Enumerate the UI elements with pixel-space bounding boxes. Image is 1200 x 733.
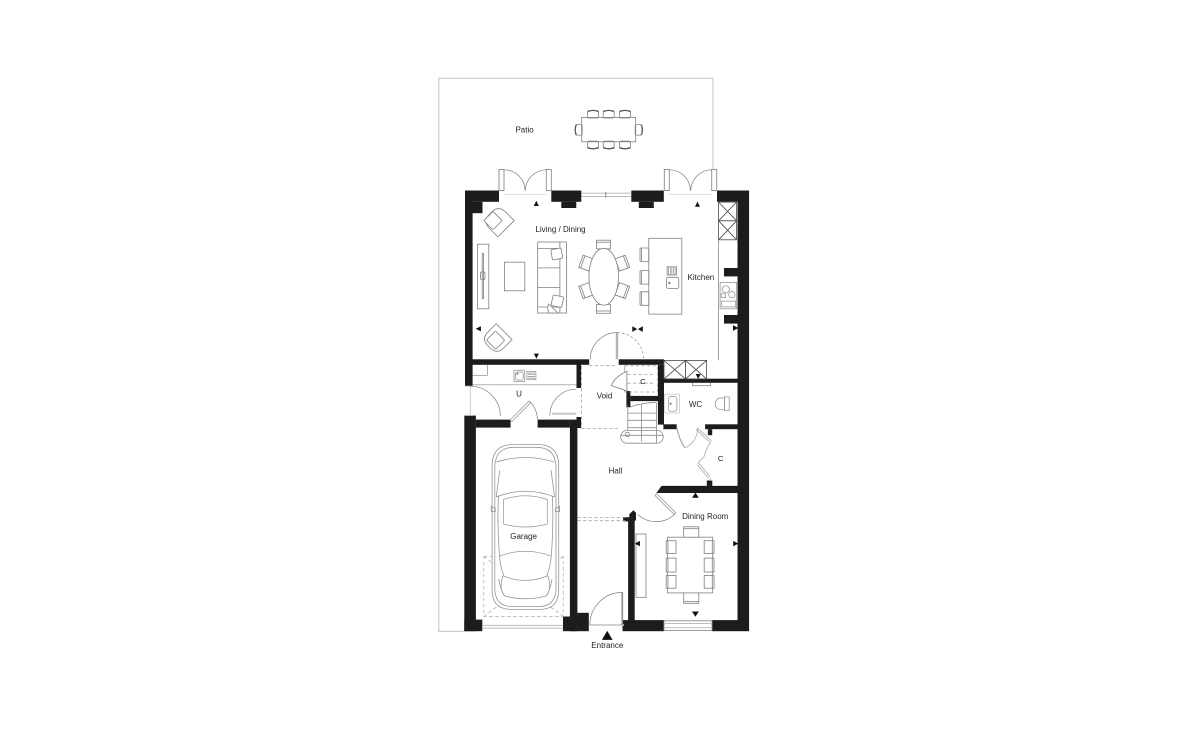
svg-text:C: C <box>640 377 646 386</box>
svg-text:Garage: Garage <box>510 532 537 541</box>
svg-text:Living / Dining: Living / Dining <box>535 225 585 234</box>
svg-text:U: U <box>516 390 522 399</box>
svg-text:WC: WC <box>689 400 703 409</box>
svg-text:C: C <box>718 454 724 463</box>
svg-text:Dining Room: Dining Room <box>682 512 729 521</box>
svg-text:Void: Void <box>597 392 613 401</box>
svg-text:Entrance: Entrance <box>591 641 624 650</box>
svg-text:Patio: Patio <box>515 126 534 135</box>
svg-text:Kitchen: Kitchen <box>688 273 715 282</box>
svg-text:Hall: Hall <box>609 466 623 475</box>
